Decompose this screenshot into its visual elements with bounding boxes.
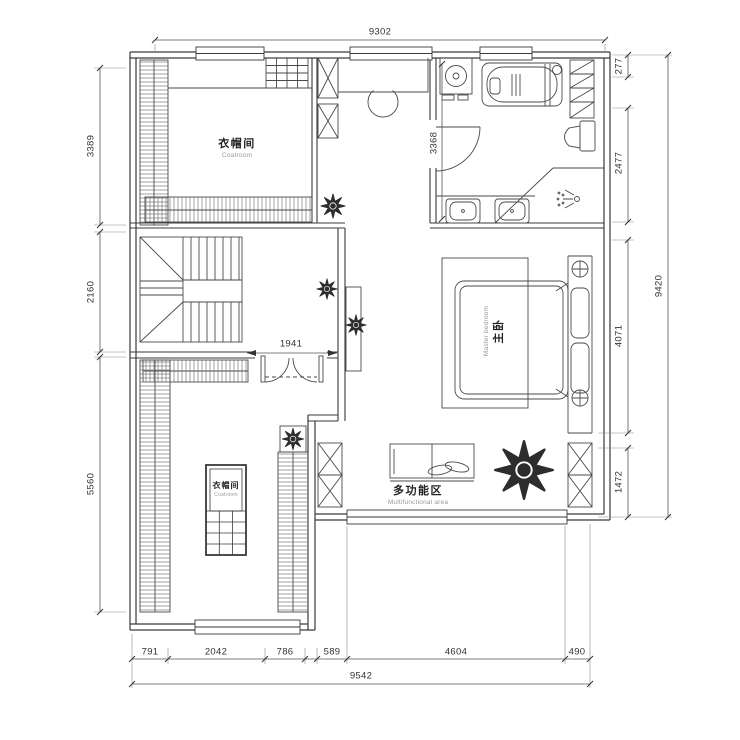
daybed-sofa	[390, 444, 474, 481]
bathtub	[482, 63, 562, 106]
washing-machine	[440, 58, 472, 100]
dim-bottom-2: 786	[277, 647, 294, 658]
room-name-zh: 多功能区	[393, 482, 443, 498]
room-name-en: Coatroom	[214, 492, 238, 498]
grid-shelf-cloakroom	[168, 58, 312, 88]
pillow	[571, 288, 589, 338]
room-name-en: Multifunctional area	[388, 499, 448, 506]
pillow	[571, 343, 589, 393]
dim-bottom-1: 2042	[205, 647, 227, 658]
shower-head-icon	[575, 197, 580, 202]
bathroom-door	[436, 127, 480, 171]
room-label-master-bedroom: Master bedroom 主卧	[482, 306, 506, 356]
dim-right-0: 277	[614, 58, 625, 75]
dim-bottom-3: 589	[324, 647, 341, 658]
dim-right-2: 4071	[614, 325, 625, 347]
room-name-en: Coatroom	[222, 152, 252, 159]
dim-right-3: 1472	[614, 471, 625, 493]
dim-door-opening: 1941	[280, 339, 302, 350]
island-cabinet	[206, 465, 246, 555]
x-cabinet-hall-2	[318, 104, 338, 138]
bed	[455, 281, 589, 399]
dim-left-1: 2160	[86, 281, 97, 303]
double-door	[261, 356, 323, 382]
dressing-desk	[338, 58, 428, 117]
room-name-en: Master bedroom	[483, 306, 490, 356]
dim-left-2: 5560	[86, 473, 97, 495]
room-name-zh: 衣帽间	[213, 480, 240, 491]
dim-bottom-5: 490	[569, 647, 586, 658]
dim-right-total: 9420	[654, 275, 665, 297]
exterior-walls	[130, 52, 610, 630]
dim-right-1: 2477	[614, 152, 625, 174]
plant-icon	[282, 428, 304, 450]
ceiling-lamp-icon	[572, 390, 588, 406]
x-cabinet-multi-right	[568, 443, 592, 507]
staircase	[140, 237, 242, 342]
room-name-zh: 衣帽间	[218, 135, 256, 151]
room-label-cloakroom-island: 衣帽间 Coatroom	[213, 480, 240, 498]
x-cabinet-hall-1	[318, 58, 338, 98]
dim-bottom-4: 4604	[445, 647, 467, 658]
floor-plan-drawing	[0, 0, 740, 740]
dim-bottom-total: 9542	[350, 671, 372, 682]
plants	[282, 194, 553, 499]
toilet	[565, 121, 596, 151]
floor-plan-page: 9302 3389 2160 5560 277 2477 4071 1472 9…	[0, 0, 740, 740]
dim-left-0: 3389	[86, 135, 97, 157]
dim-bottom-0: 791	[142, 647, 159, 658]
room-label-multifunctional: 多功能区 Multifunctional area	[388, 482, 448, 506]
ceiling-lamp-icon	[572, 261, 588, 277]
double-sinks	[436, 196, 535, 223]
large-plant-icon	[495, 441, 553, 499]
plant-icon	[321, 194, 345, 218]
bathroom-shelf	[570, 60, 594, 118]
hanger-rack-cloakroom-bottom	[145, 197, 312, 222]
dim-top-total: 9302	[369, 27, 391, 38]
plant-icon	[346, 315, 366, 335]
x-cabinet-multi-left	[318, 443, 342, 507]
bedroom-furniture	[346, 256, 592, 433]
bedside-niche	[568, 256, 592, 433]
room-name-zh: 主卧	[490, 319, 506, 344]
room-label-cloakroom-top: 衣帽间 Coatroom	[218, 135, 256, 159]
shower-area	[495, 168, 604, 223]
cabinets	[168, 58, 594, 507]
stool	[368, 91, 398, 118]
plant-icon	[317, 279, 337, 299]
multifunction-furniture	[280, 426, 474, 481]
dim-bathroom-width: 3368	[429, 132, 440, 154]
